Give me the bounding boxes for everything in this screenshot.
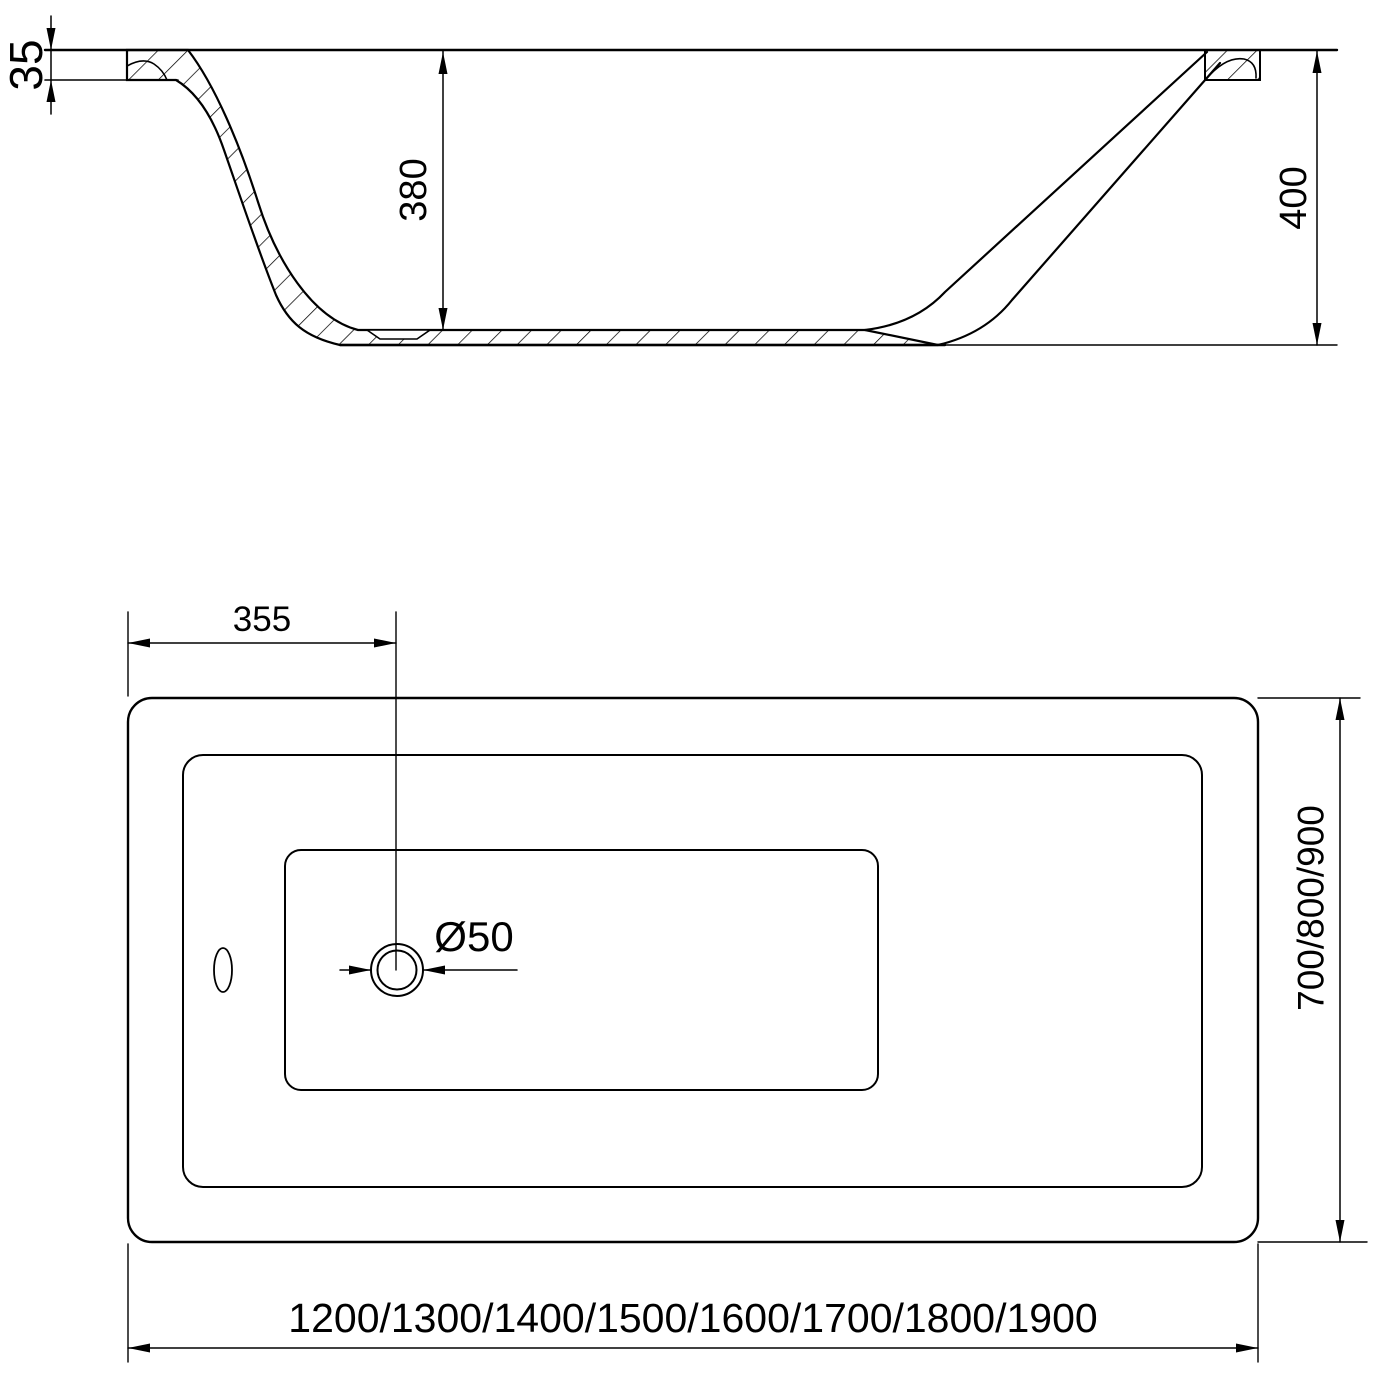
dim-width-label: 700/800/900 xyxy=(1291,805,1332,1011)
dim-length-label: 1200/1300/1400/1500/1600/1700/1800/1900 xyxy=(288,1295,1097,1341)
dim-400-label: 400 xyxy=(1273,166,1315,229)
technical-drawing: 35 380 400 xyxy=(0,0,1377,1377)
dim-35-label: 35 xyxy=(0,39,52,90)
canvas-background xyxy=(0,0,1377,1377)
right-rim-hatched-section xyxy=(1205,50,1260,80)
dim-355-label: 355 xyxy=(233,600,291,639)
dim-d50-label: Ø50 xyxy=(434,913,513,960)
bathtub-technical-drawing-page: 35 380 400 xyxy=(0,0,1377,1377)
dim-380-label: 380 xyxy=(393,158,435,221)
